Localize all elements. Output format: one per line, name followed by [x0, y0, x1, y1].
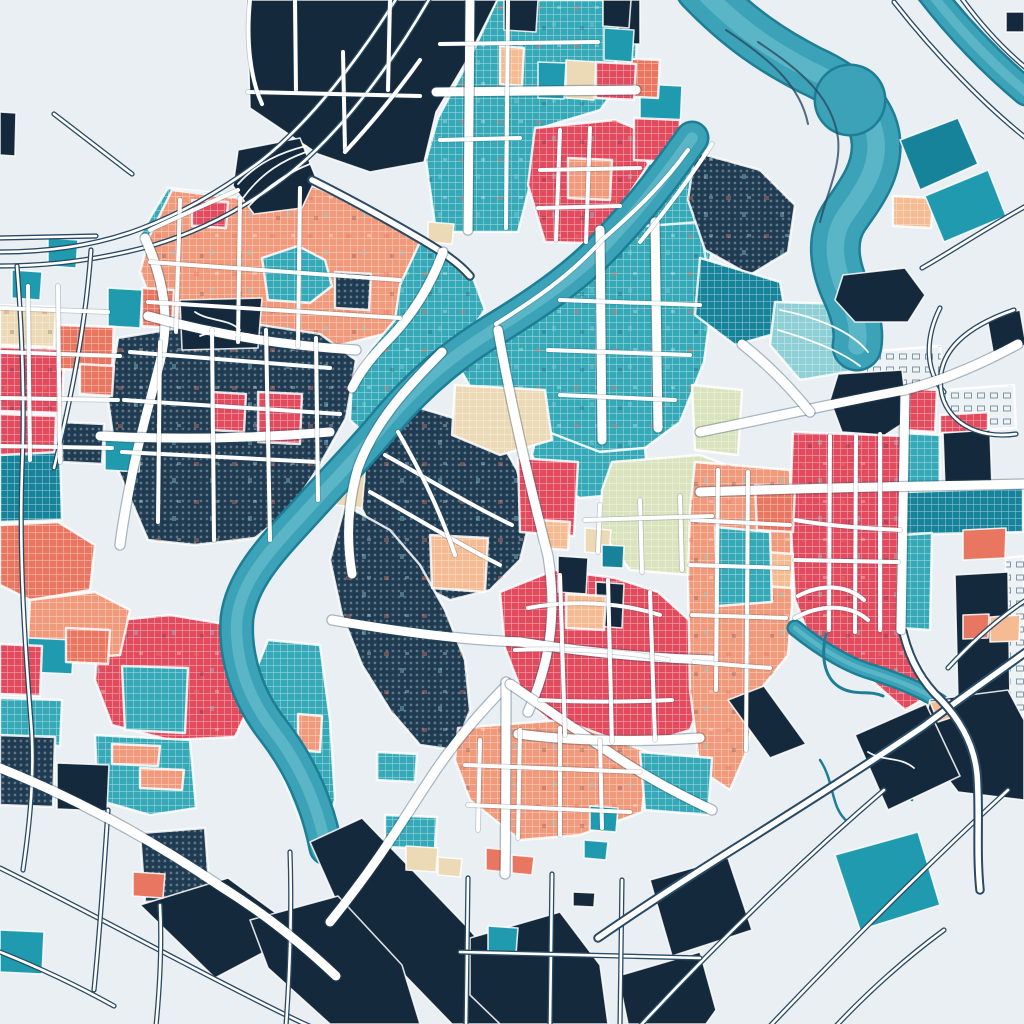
minor-road-111: [58, 286, 60, 462]
left-navy-dense-district: [62, 422, 104, 464]
red-pocket-navywest-1-district: [212, 392, 246, 432]
coral-solid-bl-district: [133, 872, 165, 898]
minor-road-60: [538, 206, 620, 208]
minor-road-105: [388, 0, 390, 90]
peach-pocket-tealnorth-district: [500, 46, 524, 86]
coral-solid-right-2-district: [963, 614, 989, 639]
tealsolid-small-2-district: [584, 840, 608, 860]
teal-pocket-band-1-district: [377, 752, 417, 782]
coral-solid-right-1-district: [963, 528, 1006, 560]
left-edge-sliver-district: [0, 112, 16, 156]
hwy-road-21: [550, 874, 552, 1024]
hwy-road-23: [620, 880, 622, 1024]
teal-square-bottom-district: [488, 926, 518, 954]
city-map-viewport: [0, 0, 1024, 1024]
city-map-canvas: [0, 0, 1024, 1024]
major-road-38: [518, 734, 700, 741]
minor-road-96: [518, 730, 520, 838]
minor-road-74: [266, 330, 270, 540]
major-road-39: [901, 390, 905, 630]
left-tealsolid-3-district: [108, 288, 142, 328]
minor-road-64: [829, 436, 830, 630]
salmon-sw-block-2-district: [140, 768, 184, 790]
minor-road-58: [586, 128, 590, 242]
minor-road-59: [540, 168, 640, 170]
minor-road-55: [440, 42, 598, 44]
sw-coral-district: [66, 628, 110, 664]
minor-road-68: [795, 560, 898, 562]
minor-road-92: [640, 500, 642, 572]
minor-road-65: [855, 436, 856, 632]
major-road-36: [505, 682, 506, 874]
coral-solid-bc-2-district: [512, 855, 534, 875]
minor-road-102: [343, 52, 345, 150]
minor-road-112: [28, 286, 30, 460]
minor-road-51: [298, 188, 300, 346]
dark-blob-water-top-district: [835, 268, 925, 322]
salmon-sw-block-1-district: [112, 744, 160, 766]
minor-road-85: [716, 470, 718, 690]
minor-road-94: [585, 516, 712, 520]
minor-road-95: [478, 740, 480, 830]
minor-road-56: [440, 138, 520, 140]
sand-block-1-district: [406, 846, 438, 872]
navy-small-light-area-district: [573, 892, 595, 907]
sand-block-2-district: [438, 857, 462, 877]
minor-road-93: [680, 496, 682, 570]
minor-road-88: [690, 565, 788, 568]
tealsolid-nw-of-river-district: [604, 28, 634, 62]
minor-road-57: [556, 130, 560, 240]
minor-road-110: [0, 446, 112, 448]
minor-road-72: [158, 342, 160, 522]
navy-pocket-tealnorth-2-district: [603, 0, 631, 28]
sw-red-district: [0, 644, 42, 696]
minor-road-98: [600, 740, 602, 828]
peach-solid-right-district: [990, 615, 1020, 642]
teal-sw-pocket-district: [122, 666, 188, 733]
mosaic-peach-2-district: [566, 594, 606, 630]
minor-road-73: [212, 330, 214, 540]
minor-road-86: [746, 472, 748, 750]
mosaic-tealdark-district: [602, 545, 624, 568]
minor-road-54: [506, 0, 508, 228]
major-road-43: [600, 230, 602, 440]
major-road-46: [468, 0, 470, 230]
minor-road-89: [692, 615, 786, 618]
minor-road-83: [608, 580, 612, 742]
left-coral-blob-district: [80, 364, 114, 396]
hwy-road-5: [0, 236, 96, 238]
minor-road-91: [598, 505, 600, 552]
minor-road-75: [316, 338, 318, 500]
corner-navy-ne-district: [1006, 12, 1024, 32]
minor-road-107: [0, 308, 108, 312]
minor-road-101: [295, 0, 296, 92]
